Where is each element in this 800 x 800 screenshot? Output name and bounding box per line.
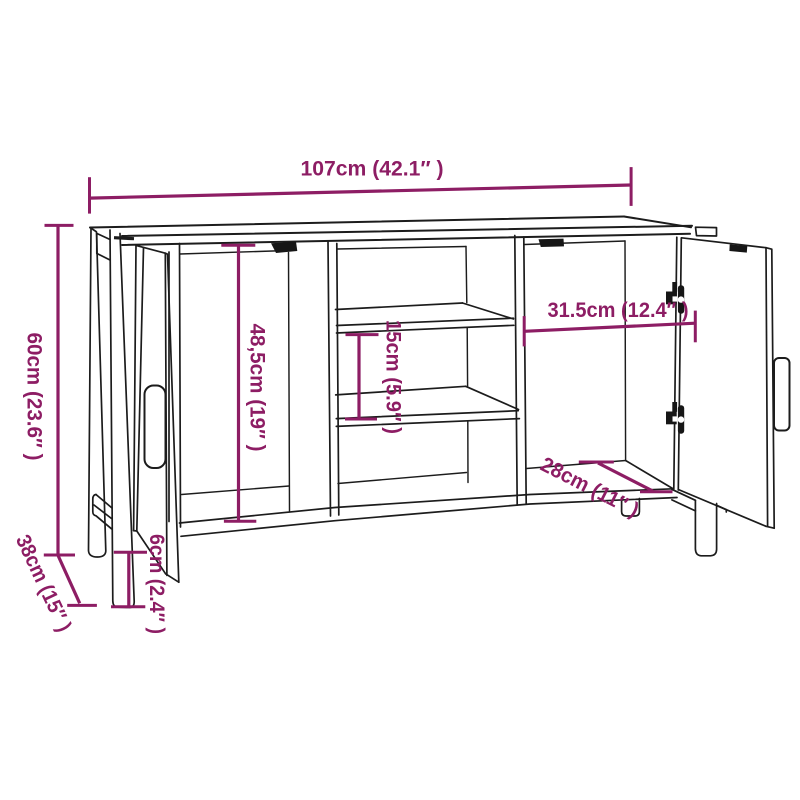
svg-text:48,5cm (19″ ): 48,5cm (19″ ) bbox=[246, 324, 269, 452]
svg-text:31.5cm (12.4″ ): 31.5cm (12.4″ ) bbox=[548, 299, 689, 322]
svg-text:6cm (2.4″ ): 6cm (2.4″ ) bbox=[145, 534, 168, 634]
svg-text:15cm (5.9″ ): 15cm (5.9″ ) bbox=[382, 320, 405, 434]
svg-text:107cm (42.1″ ): 107cm (42.1″ ) bbox=[301, 158, 444, 181]
svg-text:60cm (23.6″ ): 60cm (23.6″ ) bbox=[23, 333, 46, 461]
